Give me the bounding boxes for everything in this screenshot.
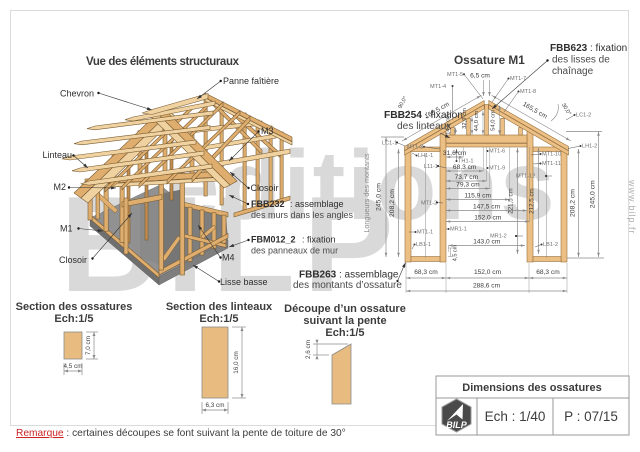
svg-text:LC1-1: LC1-1: [382, 141, 397, 147]
svg-text:MT1-11: MT1-11: [542, 161, 561, 167]
svg-text:MT1-2: MT1-2: [421, 201, 437, 207]
svg-text:FBM012_2: FBM012_2: [251, 235, 296, 245]
svg-text:152,0 cm: 152,0 cm: [474, 214, 502, 221]
svg-text:115,9 cm: 115,9 cm: [464, 192, 491, 199]
svg-text:30,0°: 30,0°: [560, 102, 572, 116]
svg-text:68,3 cm: 68,3 cm: [453, 164, 477, 171]
svg-text:245,0 cm: 245,0 cm: [376, 183, 383, 211]
svg-text:6,5 cm: 6,5 cm: [470, 73, 490, 80]
svg-text:165,5 cm: 165,5 cm: [521, 101, 548, 121]
svg-text:M1: M1: [60, 224, 73, 234]
svg-text:147,5 cm: 147,5 cm: [473, 203, 501, 210]
svg-text:FBB623: FBB623: [550, 43, 588, 54]
svg-text:Ech:1/5: Ech:1/5: [199, 313, 238, 325]
svg-text:LH1-2: LH1-2: [582, 144, 597, 150]
svg-text:MT1-5: MT1-5: [447, 72, 463, 78]
svg-text:des linteaux: des linteaux: [397, 121, 451, 132]
svg-text:BILP: BILP: [446, 420, 467, 430]
svg-text:2,6 cm: 2,6 cm: [305, 340, 312, 359]
svg-text:73,7 cm: 73,7 cm: [455, 174, 479, 181]
svg-text:MT1-9: MT1-9: [489, 166, 505, 172]
svg-text:68,3 cm: 68,3 cm: [536, 269, 560, 276]
svg-text:Remarque : certaines découpes: Remarque : certaines découpes se font su…: [16, 428, 346, 439]
svg-text:MR1-2: MR1-2: [490, 234, 507, 240]
svg-text:MR1-1: MR1-1: [450, 227, 467, 233]
svg-text:: fixation: : fixation: [302, 235, 336, 245]
svg-text:MT1-8: MT1-8: [520, 89, 536, 95]
svg-text:Ech : 1/40: Ech : 1/40: [485, 409, 546, 424]
svg-text:chaînage: chaînage: [552, 66, 594, 77]
svg-text:MT1-10: MT1-10: [542, 152, 561, 158]
svg-text:44,0 cm: 44,0 cm: [474, 111, 480, 132]
svg-text:MT1-6: MT1-6: [489, 149, 505, 155]
svg-text:79,3 cm: 79,3 cm: [456, 181, 480, 188]
svg-text:Chevron: Chevron: [60, 89, 94, 99]
svg-text:Closoir: Closoir: [251, 183, 279, 193]
svg-text:Section des ossatures: Section des ossatures: [16, 301, 133, 313]
svg-text:221,5 cm: 221,5 cm: [508, 188, 515, 213]
svg-text:LH1-1: LH1-1: [418, 153, 433, 159]
svg-text:TH1-1: TH1-1: [458, 159, 474, 165]
svg-text:: fixation: : fixation: [425, 110, 463, 121]
svg-text:Découpe d’un ossature: Découpe d’un ossature: [284, 303, 406, 315]
svg-text:4,5 cm: 4,5 cm: [453, 244, 459, 261]
svg-text:212,5 cm: 212,5 cm: [529, 188, 536, 213]
svg-text:des lisses de: des lisses de: [552, 55, 610, 66]
svg-text:Ossature M1: Ossature M1: [454, 53, 525, 67]
svg-text:Vue des éléments structuraux: Vue des éléments structuraux: [86, 56, 240, 68]
svg-text:M4: M4: [222, 253, 235, 263]
svg-text:M2: M2: [54, 182, 67, 192]
svg-text:6,3 cm: 6,3 cm: [206, 402, 225, 409]
svg-text:LB1-1: LB1-1: [416, 242, 431, 248]
svg-text:Dimensions des ossatures: Dimensions des ossatures: [462, 382, 601, 394]
svg-text:FBB232: FBB232: [251, 199, 285, 209]
svg-text:suivant la pente: suivant la pente: [303, 315, 386, 327]
svg-text:Closoir: Closoir: [59, 255, 87, 265]
svg-text:FBB263: FBB263: [299, 270, 337, 281]
svg-text:Ech:1/5: Ech:1/5: [54, 313, 93, 325]
svg-text:7,0 cm: 7,0 cm: [85, 336, 92, 355]
svg-text:16,0 cm: 16,0 cm: [233, 351, 240, 373]
svg-text:Linteau: Linteau: [43, 150, 73, 160]
svg-text:P : 07/15: P : 07/15: [564, 409, 618, 424]
svg-text:LC1-2: LC1-2: [576, 113, 591, 119]
svg-text:M3: M3: [261, 126, 274, 136]
svg-text:: assemblage: : assemblage: [339, 270, 399, 281]
svg-text:des murs dans les angles: des murs dans les angles: [251, 210, 354, 220]
svg-text:FBB254: FBB254: [384, 110, 422, 121]
svg-text:Lisse basse: Lisse basse: [220, 277, 268, 287]
svg-text:68,3 cm: 68,3 cm: [414, 269, 438, 276]
svg-text:152,0 cm: 152,0 cm: [474, 269, 502, 276]
svg-text:4,5 cm: 4,5 cm: [64, 363, 83, 370]
svg-text:Panne faîtière: Panne faîtière: [223, 76, 279, 86]
svg-text:90,0°: 90,0°: [397, 95, 408, 109]
svg-text:288,6 cm: 288,6 cm: [473, 283, 501, 290]
svg-text:Ech:1/5: Ech:1/5: [325, 327, 364, 339]
svg-text:MT1-3: MT1-3: [407, 145, 423, 151]
svg-text:MT1-12: MT1-12: [516, 174, 535, 180]
svg-text:des panneaux de mur: des panneaux de mur: [251, 246, 338, 256]
svg-text:245,0 cm: 245,0 cm: [590, 180, 597, 208]
svg-text:L11-1: L11-1: [424, 164, 438, 170]
svg-text:des montants d’ossature: des montants d’ossature: [293, 280, 402, 291]
svg-text:Section des linteaux: Section des linteaux: [166, 301, 273, 313]
svg-text:208,2 cm: 208,2 cm: [389, 189, 396, 217]
svg-text:LB1-2: LB1-2: [543, 242, 558, 248]
svg-text:: assemblage: : assemblage: [290, 199, 344, 209]
svg-text:: fixation: : fixation: [590, 43, 627, 54]
svg-text:208,2 cm: 208,2 cm: [570, 189, 577, 217]
svg-text:Longueurs des montants: Longueurs des montants: [362, 153, 371, 233]
svg-text:54,0 cm: 54,0 cm: [491, 110, 497, 131]
svg-text:MT1-4: MT1-4: [430, 84, 446, 90]
svg-text:MT1-1: MT1-1: [417, 230, 433, 236]
